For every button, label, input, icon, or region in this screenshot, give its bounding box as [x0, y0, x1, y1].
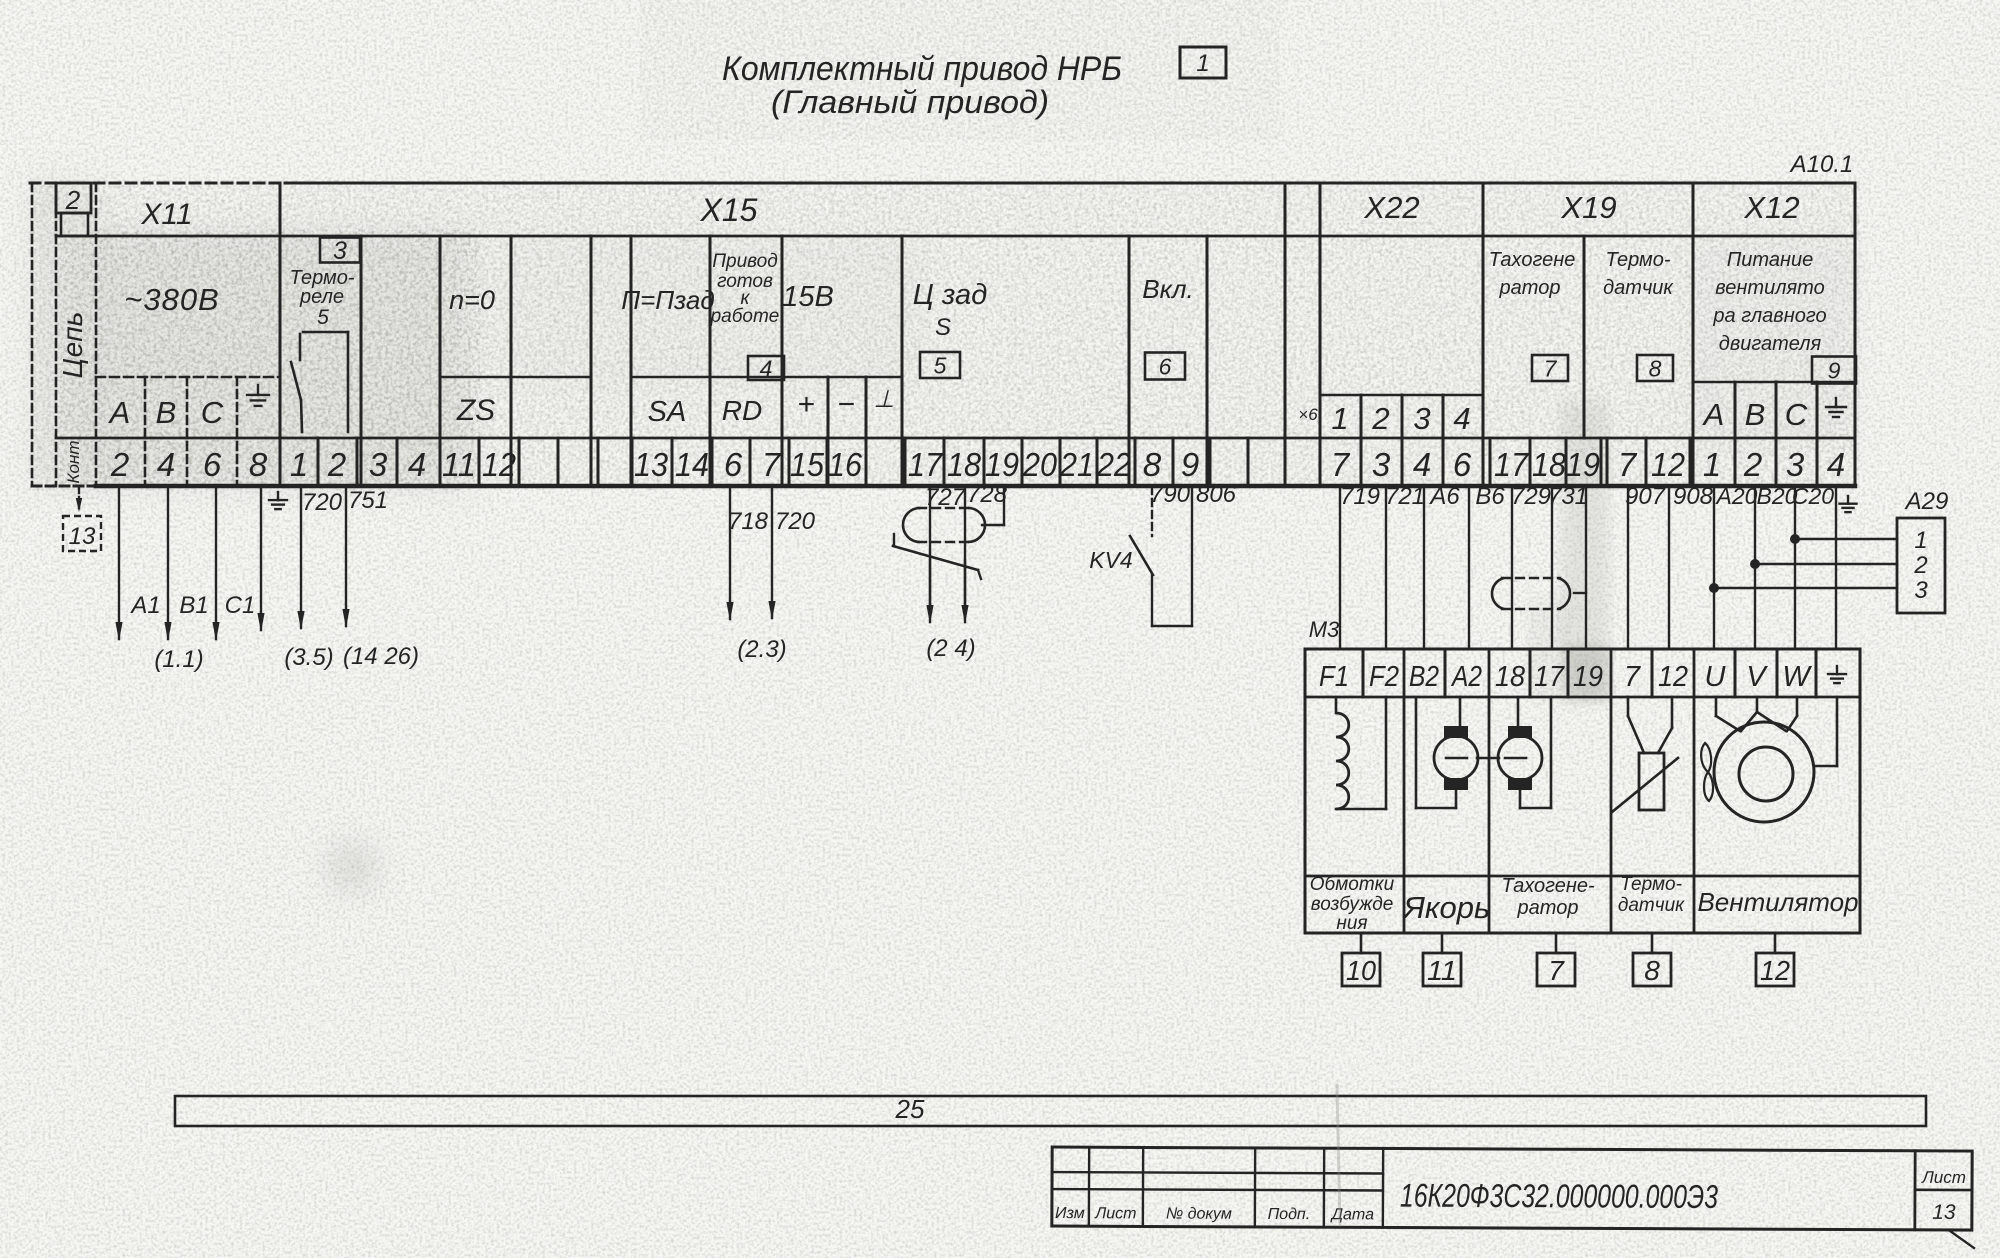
svg-text:Вкл.: Вкл.	[1142, 274, 1194, 304]
svg-text:+: +	[797, 388, 815, 421]
svg-text:А20: А20	[1715, 483, 1758, 509]
svg-text:15В: 15В	[782, 281, 834, 313]
svg-text:5: 5	[934, 352, 947, 378]
svg-text:возбужде: возбужде	[1311, 894, 1394, 915]
svg-text:8: 8	[1649, 355, 1662, 381]
svg-text:19: 19	[985, 446, 1019, 483]
svg-text:20: 20	[1022, 446, 1058, 483]
svg-text:19: 19	[1566, 446, 1600, 483]
svg-text:П=Пзад: П=Пзад	[621, 285, 715, 315]
svg-text:Термо-: Термо-	[1620, 874, 1682, 895]
svg-text:Комплектный привод НРБ: Комплектный привод НРБ	[722, 50, 1122, 88]
svg-text:2: 2	[1743, 446, 1762, 483]
svg-text:F1: F1	[1319, 661, 1349, 693]
svg-text:25: 25	[895, 1094, 925, 1124]
svg-text:12: 12	[482, 446, 516, 483]
svg-text:Конт: Конт	[64, 441, 83, 484]
svg-text:работе: работе	[710, 306, 780, 327]
svg-text:728: 728	[967, 481, 1008, 508]
svg-text:3: 3	[369, 446, 388, 483]
svg-text:Якорь: Якорь	[1402, 890, 1491, 925]
svg-text:6: 6	[724, 446, 743, 483]
svg-text:2: 2	[1371, 401, 1389, 436]
svg-text:В2: В2	[1409, 661, 1439, 693]
svg-text:Х12: Х12	[1743, 190, 1799, 225]
svg-text:Х22: Х22	[1363, 190, 1419, 225]
svg-text:ния: ния	[1336, 913, 1367, 934]
svg-text:721: 721	[1385, 483, 1425, 510]
svg-text:16: 16	[828, 446, 863, 483]
svg-text:Цепь: Цепь	[57, 312, 88, 379]
svg-text:Термо-: Термо-	[1605, 249, 1670, 271]
svg-text:1: 1	[1703, 446, 1721, 483]
svg-text:17: 17	[1494, 446, 1530, 483]
svg-text:4: 4	[1827, 446, 1845, 483]
svg-text:датчик: датчик	[1603, 277, 1674, 299]
svg-text:Х15: Х15	[700, 192, 758, 228]
svg-text:Вентилятор: Вентилятор	[1697, 887, 1858, 917]
svg-text:13: 13	[69, 523, 96, 550]
svg-text:1: 1	[1331, 401, 1348, 436]
svg-text:−: −	[837, 388, 855, 421]
svg-text:17: 17	[1534, 661, 1566, 693]
svg-text:3: 3	[1372, 446, 1391, 483]
svg-text:16К20Ф3С32.000000.000Э3: 16К20Ф3С32.000000.000Э3	[1400, 1177, 1719, 1215]
svg-text:U: U	[1705, 661, 1727, 693]
svg-text:×6: ×6	[1298, 405, 1318, 424]
svg-text:А6: А6	[1428, 483, 1460, 510]
svg-text:7: 7	[1618, 446, 1638, 483]
svg-text:KV4: KV4	[1089, 547, 1132, 573]
svg-text:731: 731	[1548, 483, 1588, 510]
svg-text:(1.1): (1.1)	[154, 646, 203, 673]
svg-text:6: 6	[203, 446, 222, 483]
svg-text:ратор: ратор	[1517, 897, 1579, 919]
svg-text:718: 718	[728, 508, 769, 535]
svg-text:V: V	[1746, 661, 1768, 693]
svg-text:ZS: ZS	[456, 394, 495, 427]
svg-text:Тахогене: Тахогене	[1489, 249, 1576, 271]
svg-text:12: 12	[1760, 955, 1790, 986]
svg-text:907: 907	[1625, 483, 1667, 510]
svg-text:1: 1	[1196, 50, 1209, 77]
svg-text:(Главный привод): (Главный привод)	[771, 84, 1049, 120]
svg-text:2: 2	[65, 185, 81, 215]
svg-text:7: 7	[1331, 446, 1351, 483]
svg-text:2: 2	[1913, 552, 1927, 579]
svg-text:датчик: датчик	[1618, 895, 1685, 916]
svg-text:(3.5): (3.5)	[284, 644, 333, 671]
svg-text:~380В: ~380В	[124, 282, 220, 317]
svg-text:ратор: ратор	[1499, 277, 1561, 299]
svg-text:А1: А1	[129, 592, 160, 619]
svg-text:W: W	[1782, 661, 1812, 693]
svg-text:S: S	[935, 314, 951, 341]
svg-text:18: 18	[947, 446, 982, 483]
svg-text:вентилято: вентилято	[1715, 277, 1824, 299]
svg-text:14: 14	[675, 446, 709, 483]
svg-text:RD: RD	[722, 395, 762, 426]
svg-text:7: 7	[762, 446, 782, 483]
svg-text:10: 10	[1346, 955, 1376, 986]
svg-text:4: 4	[157, 446, 175, 483]
svg-text:Лист: Лист	[1921, 1168, 1966, 1187]
svg-text:751: 751	[348, 487, 388, 514]
svg-text:11: 11	[1427, 955, 1457, 986]
svg-text:реле: реле	[299, 286, 344, 308]
svg-text:Тахогене-: Тахогене-	[1501, 875, 1595, 897]
svg-text:2: 2	[327, 446, 346, 483]
svg-text:729: 729	[1511, 483, 1551, 510]
svg-text:(2.3): (2.3)	[737, 636, 786, 663]
svg-text:Лист: Лист	[1094, 1205, 1136, 1222]
svg-text:А29: А29	[1904, 488, 1949, 515]
svg-text:4: 4	[408, 446, 426, 483]
svg-text:Ц зад: Ц зад	[913, 279, 987, 311]
svg-text:18: 18	[1532, 446, 1567, 483]
svg-text:22: 22	[1096, 446, 1131, 483]
svg-text:8: 8	[1143, 446, 1162, 483]
svg-text:С20: С20	[1792, 483, 1834, 509]
svg-text:В: В	[156, 395, 177, 430]
svg-text:F2: F2	[1369, 661, 1399, 693]
svg-text:Х19: Х19	[1560, 190, 1616, 225]
svg-text:3: 3	[1413, 401, 1430, 436]
svg-text:6: 6	[1159, 353, 1172, 379]
svg-text:12: 12	[1651, 446, 1685, 483]
svg-text:SA: SA	[648, 396, 687, 428]
svg-text:Питание: Питание	[1727, 249, 1813, 271]
svg-text:n=0: n=0	[449, 285, 495, 315]
svg-text:8: 8	[1644, 955, 1660, 986]
svg-text:Привод: Привод	[712, 251, 777, 272]
svg-text:4: 4	[1413, 446, 1431, 483]
svg-text:7: 7	[1544, 355, 1558, 381]
svg-text:18: 18	[1495, 661, 1525, 693]
svg-text:А: А	[108, 395, 131, 430]
svg-text:4: 4	[760, 355, 773, 381]
svg-text:С: С	[1785, 397, 1808, 432]
svg-text:Изм: Изм	[1055, 1205, 1085, 1222]
svg-text:№ докум: № докум	[1166, 1206, 1232, 1223]
svg-text:С: С	[201, 395, 224, 430]
svg-text:3: 3	[1914, 577, 1928, 604]
svg-text:Х11: Х11	[140, 198, 192, 231]
svg-text:(14 26): (14 26)	[343, 643, 419, 670]
svg-text:806: 806	[1196, 481, 1237, 508]
svg-text:9: 9	[1828, 357, 1841, 383]
svg-text:М3: М3	[1309, 617, 1340, 642]
svg-text:21: 21	[1059, 446, 1094, 483]
svg-text:А: А	[1702, 397, 1725, 432]
svg-text:3: 3	[1786, 446, 1805, 483]
svg-text:13: 13	[634, 446, 669, 483]
svg-text:19: 19	[1573, 661, 1603, 693]
svg-text:17: 17	[908, 446, 944, 483]
svg-text:719: 719	[1340, 483, 1380, 510]
svg-text:ра главного: ра главного	[1712, 305, 1826, 327]
svg-text:8: 8	[249, 446, 268, 483]
svg-text:6: 6	[1453, 446, 1472, 483]
svg-text:15: 15	[790, 446, 825, 483]
svg-text:В1: В1	[179, 592, 208, 619]
svg-text:2: 2	[110, 446, 129, 483]
svg-text:А10.1: А10.1	[1789, 151, 1854, 178]
svg-text:908: 908	[1673, 483, 1714, 510]
svg-text:Дата: Дата	[1330, 1206, 1374, 1223]
svg-text:9: 9	[1181, 446, 1199, 483]
svg-text:7: 7	[1548, 955, 1565, 986]
svg-text:1: 1	[1914, 527, 1927, 554]
svg-text:720: 720	[775, 508, 816, 535]
svg-text:В6: В6	[1475, 483, 1505, 510]
svg-text:790: 790	[1150, 481, 1191, 508]
svg-text:1: 1	[290, 446, 308, 483]
svg-text:11: 11	[442, 446, 476, 483]
svg-text:двигателя: двигателя	[1719, 333, 1822, 355]
svg-text:Обмотки: Обмотки	[1310, 874, 1395, 895]
svg-text:А2: А2	[1450, 661, 1482, 693]
svg-text:3: 3	[333, 237, 347, 265]
svg-text:4: 4	[1453, 401, 1470, 436]
svg-text:В: В	[1745, 397, 1766, 432]
svg-text:7: 7	[1624, 661, 1642, 693]
svg-text:(2 4): (2 4)	[926, 635, 975, 662]
svg-text:720: 720	[302, 489, 343, 516]
svg-text:13: 13	[1932, 1201, 1956, 1224]
svg-text:⊥: ⊥	[874, 386, 895, 413]
svg-text:Подп.: Подп.	[1268, 1206, 1311, 1223]
svg-text:5: 5	[317, 306, 329, 329]
svg-text:С1: С1	[225, 592, 256, 619]
svg-text:12: 12	[1658, 661, 1688, 693]
